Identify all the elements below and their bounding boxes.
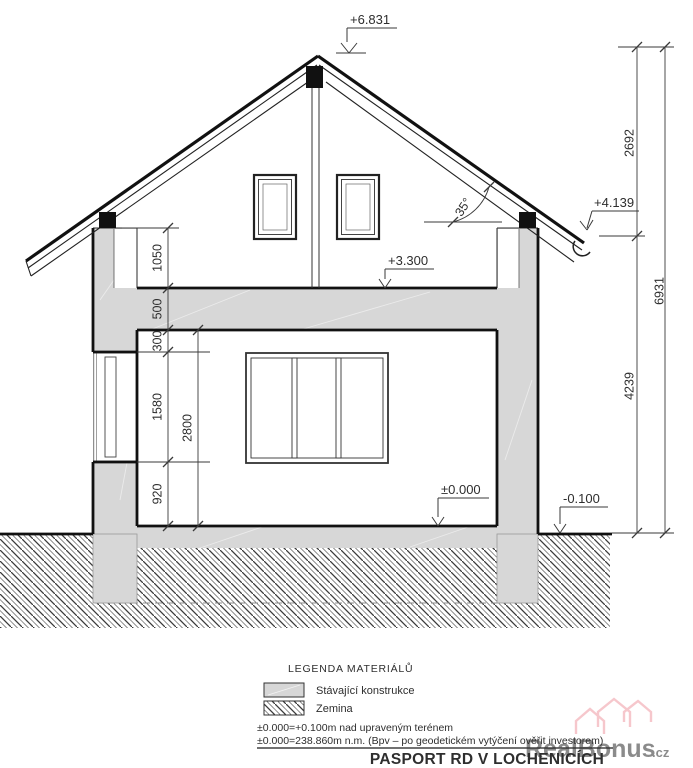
left-wall-section-window xyxy=(94,353,137,461)
note-line-1: ±0.000=+0.100m nad upraveným terénem xyxy=(257,722,453,734)
level-labels: +6.831 +3.300 ±0.000 +4.139 -0.100 xyxy=(350,12,634,506)
dim-2800: 2800 xyxy=(180,414,194,442)
ground-floor-slab xyxy=(93,526,538,548)
level-terrain: -0.100 xyxy=(563,491,600,506)
main-window xyxy=(246,353,388,463)
roof-pitch-label: 35° xyxy=(452,195,474,218)
watermark: RealBonus .cz xyxy=(525,699,670,763)
level-eave: +4.139 xyxy=(594,195,634,210)
dimension-labels-right: 2692 4239 6931 xyxy=(622,129,666,400)
legend-label-construction: Stávající konstrukce xyxy=(316,685,414,697)
legend-label-soil: Zemina xyxy=(316,703,354,715)
right-wall-plate xyxy=(519,212,536,228)
level-attic-floor: +3.300 xyxy=(388,253,428,268)
ridge-beam xyxy=(306,66,323,88)
dim-300: 300 xyxy=(150,331,164,352)
dim-1050: 1050 xyxy=(150,244,164,272)
drawing-page: 1050 500 300 1580 920 2800 2692 4239 693… xyxy=(0,0,693,768)
right-foundation xyxy=(497,534,538,603)
level-leader-eave xyxy=(580,211,639,230)
level-ground-floor: ±0.000 xyxy=(441,482,481,497)
dim-4239: 4239 xyxy=(622,372,636,400)
ridge-post xyxy=(312,88,319,288)
roof-pitch-annotation: 35° xyxy=(424,182,502,227)
left-fascia xyxy=(26,261,31,276)
attic-window-right xyxy=(337,175,379,239)
dim-1580: 1580 xyxy=(150,393,164,421)
level-leader-attic xyxy=(379,269,434,288)
level-ridge: +6.831 xyxy=(350,12,390,27)
level-leader-terrain xyxy=(554,507,608,533)
window-mullion xyxy=(292,358,297,458)
watermark-houses-icon xyxy=(576,699,651,734)
legend-heading: LEGENDA MATERIÁLŮ xyxy=(288,662,413,675)
dim-500: 500 xyxy=(150,299,164,320)
level-leader-floor xyxy=(432,498,489,526)
left-wall-plate xyxy=(99,212,116,228)
dim-6931: 6931 xyxy=(652,277,666,305)
attic-lining xyxy=(114,229,519,288)
watermark-text: RealBonus xyxy=(525,735,656,763)
legend-swatch-soil xyxy=(264,701,304,715)
watermark-tld: .cz xyxy=(652,745,670,760)
left-foundation xyxy=(93,534,137,603)
window-mullion xyxy=(336,358,341,458)
level-leader-ridge xyxy=(336,28,397,53)
attic-window-left xyxy=(254,175,296,239)
dim-920: 920 xyxy=(150,484,164,505)
dim-2692: 2692 xyxy=(622,129,636,157)
dim-ticks xyxy=(163,223,203,531)
house-section-drawing: 1050 500 300 1580 920 2800 2692 4239 693… xyxy=(0,0,693,768)
